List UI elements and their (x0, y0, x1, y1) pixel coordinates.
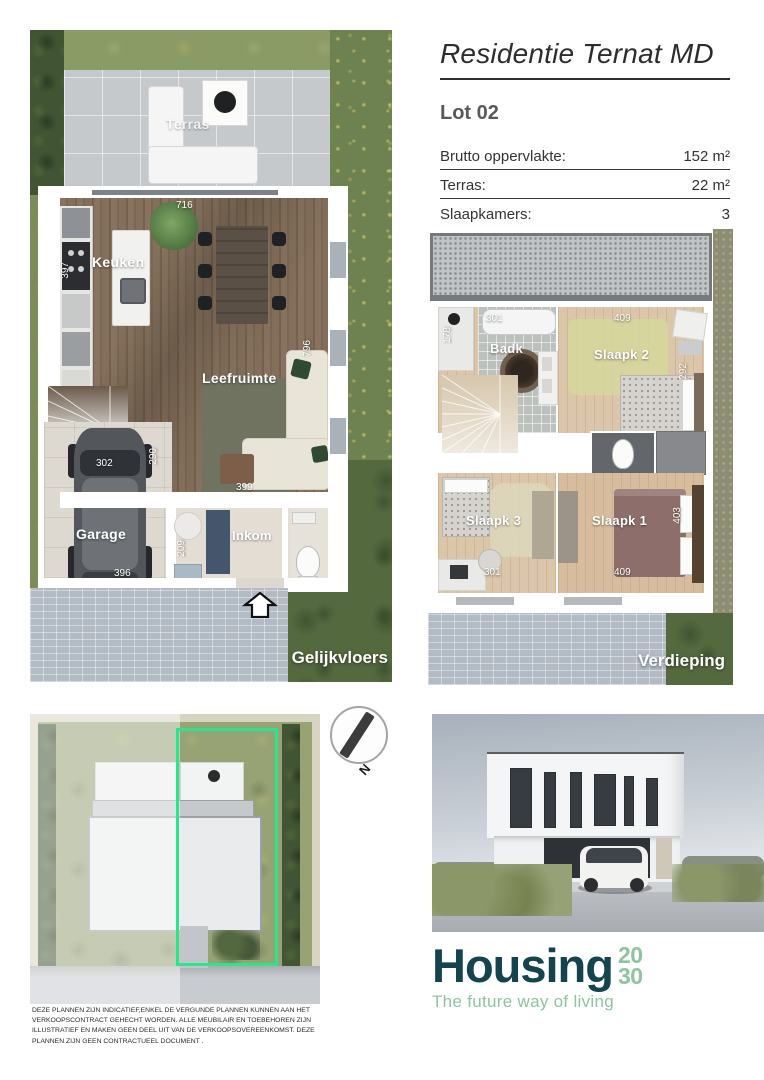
disclaimer-text: DEZE PLANNEN ZIJN INDICATIEF,ENKEL DE VE… (32, 1006, 336, 1047)
gf-dim-living-depth: 796 (302, 340, 313, 357)
uf-dim-slaapk1-width: 409 (614, 567, 631, 578)
gf-pouf (174, 512, 202, 540)
room-label-keuken: Keuken (92, 254, 144, 270)
render-car-wheel (630, 878, 644, 892)
spec-label: Terras: (440, 177, 486, 194)
uf-dim-badk-depth: 178 (442, 327, 453, 344)
gf-cooktop-burner (68, 250, 74, 256)
gf-dim-garage-width: 302 (96, 458, 113, 469)
render-window (544, 772, 556, 828)
gf-terrace-sofa-seat (148, 146, 258, 184)
spec-row: Slaapkamers: 3 (440, 199, 730, 228)
spec-row: Terras: 22 m² (440, 170, 730, 199)
gf-coffee-table (220, 454, 254, 484)
uf-staircase (442, 375, 518, 453)
uf-vanity-basin (542, 379, 552, 393)
brand-logo-row: Housing 20 30 (432, 944, 762, 989)
room-label-slaapk1: Slaapk 1 (592, 513, 647, 528)
gf-sofa-pillow (311, 445, 330, 464)
brand-year-bottom: 30 (618, 966, 643, 987)
room-label-garage: Garage (76, 526, 126, 542)
uf-window-sill (564, 597, 622, 605)
uf-gravel-strip (713, 229, 733, 617)
spec-value: 22 m² (692, 177, 730, 194)
uf-slaapk1-wardrobe (558, 491, 578, 563)
render-window (510, 768, 532, 828)
gf-dining-chair (272, 232, 286, 246)
gf-sliding-door (92, 190, 278, 195)
gf-kitchen-cabinet (62, 294, 90, 328)
brand-tagline: The future way of living (432, 992, 762, 1012)
uf-wc-toilet (612, 439, 634, 469)
gf-fire-table-bowl (214, 91, 236, 113)
room-label-terras: Terras (166, 116, 210, 132)
render-car-wheel (584, 878, 598, 892)
gf-dining-chair (198, 264, 212, 278)
room-label-inkom: Inkom (232, 528, 272, 543)
north-label: N (356, 761, 373, 778)
brand-logo: Housing 20 30 The future way of living (432, 944, 762, 1012)
gf-dim-entry-depth: 209 (176, 540, 187, 557)
upper-floor-plan: Badk Slaapk 2 Slaapk 3 Slaapk 1 301 178 … (428, 225, 733, 685)
uf-slaapk2-dresser (678, 341, 702, 355)
spec-value: 152 m² (683, 148, 730, 165)
gf-dim-kitchen-depth: 397 (60, 262, 71, 279)
uf-dim-slaapk2-width: 409 (614, 313, 631, 324)
uf-slaapk1-bed (614, 489, 686, 577)
gf-dining-table (216, 226, 268, 324)
spec-value: 3 (722, 206, 730, 223)
spec-table: Brutto oppervlakte: 152 m² Terras: 22 m²… (440, 141, 730, 228)
gf-kitchen-appliance (62, 208, 90, 238)
floorplan-brochure-page: Terras (0, 0, 764, 1080)
gf-island-sink (120, 278, 146, 304)
gf-window (330, 418, 346, 454)
room-label-slaapk3: Slaapk 3 (466, 513, 521, 528)
gf-doormat (206, 510, 230, 574)
uf-slaapk3-cabinet (532, 491, 554, 559)
site-hedge-right (282, 724, 300, 969)
gf-hedge-left (30, 30, 64, 195)
gf-dim-garage-depth: 290 (148, 448, 159, 465)
ground-floor-plan: Terras (30, 30, 392, 682)
ground-floor-caption: Gelijkvloers (292, 648, 388, 668)
uf-dim-slaapk2-depth: 292 (678, 363, 689, 380)
uf-window-sill (456, 597, 514, 605)
brand-years: 20 30 (618, 944, 643, 987)
gf-wc-sink (292, 512, 316, 524)
gf-cooktop-burner (78, 266, 84, 272)
uf-vanity-basin (542, 357, 552, 371)
uf-slaapk1-headboard (692, 485, 704, 583)
uf-slaapk2-headboard (694, 373, 704, 435)
uf-slaapk2-desk (672, 309, 708, 341)
upper-floor-caption: Verdieping (638, 651, 725, 671)
spec-label: Brutto oppervlakte: (440, 148, 566, 165)
uf-stair-fan (442, 375, 518, 453)
spec-label: Slaapkamers: (440, 206, 532, 223)
uf-slaapk3-laptop (450, 565, 468, 579)
house-render (432, 714, 764, 932)
lot-number: Lot 02 (440, 102, 730, 125)
gf-dim-garage-bottom: 396 (114, 568, 131, 579)
render-window (624, 776, 634, 826)
gf-dining-chair (272, 264, 286, 278)
uf-dim-slaapk3-width: 301 (484, 567, 501, 578)
gf-toilet (296, 546, 320, 578)
uf-flat-roof (430, 233, 712, 301)
render-bushes-right (672, 864, 764, 902)
gf-dining-chair (198, 232, 212, 246)
gf-dim-hall-width: 399 (236, 482, 253, 493)
header-panel: Residentie Ternat MD Lot 02 Brutto opper… (440, 38, 730, 228)
render-car-windows (586, 848, 642, 863)
site-lot-outline (176, 728, 278, 966)
uf-slaapk3-pillow (444, 479, 488, 493)
gf-entrance-arrow-icon (242, 592, 278, 618)
site-plan (30, 714, 320, 1004)
uf-dim-badk-width: 301 (486, 313, 503, 324)
gf-cooktop-burner (78, 250, 84, 256)
uf-dim-slaapk1-depth: 403 (672, 507, 683, 524)
gf-interior-wall (60, 492, 328, 508)
brand-name: Housing (432, 944, 613, 989)
uf-driveway (428, 613, 666, 685)
render-window (594, 774, 616, 826)
gf-dining-chair (272, 296, 286, 310)
room-label-slaapk2: Slaapk 2 (594, 347, 649, 362)
render-window (570, 772, 582, 828)
compass: N (322, 704, 394, 788)
gf-window (330, 330, 346, 366)
project-title: Residentie Ternat MD (440, 38, 730, 80)
room-label-badk: Badk (490, 341, 523, 356)
render-front-door (656, 838, 672, 879)
uf-wardrobe (656, 431, 706, 475)
render-window (646, 778, 658, 826)
gf-window (330, 242, 346, 278)
room-label-leefruimte: Leefruimte (202, 370, 277, 386)
gf-dim-living-width: 716 (176, 200, 193, 211)
render-bushes-left (432, 864, 572, 916)
gf-dining-chair (198, 296, 212, 310)
gf-kitchen-cabinet (62, 332, 90, 366)
uf-grass (666, 613, 733, 685)
spec-row: Brutto oppervlakte: 152 m² (440, 141, 730, 170)
site-neighbour-fade (30, 714, 180, 1004)
uf-badk-sink (448, 313, 460, 325)
